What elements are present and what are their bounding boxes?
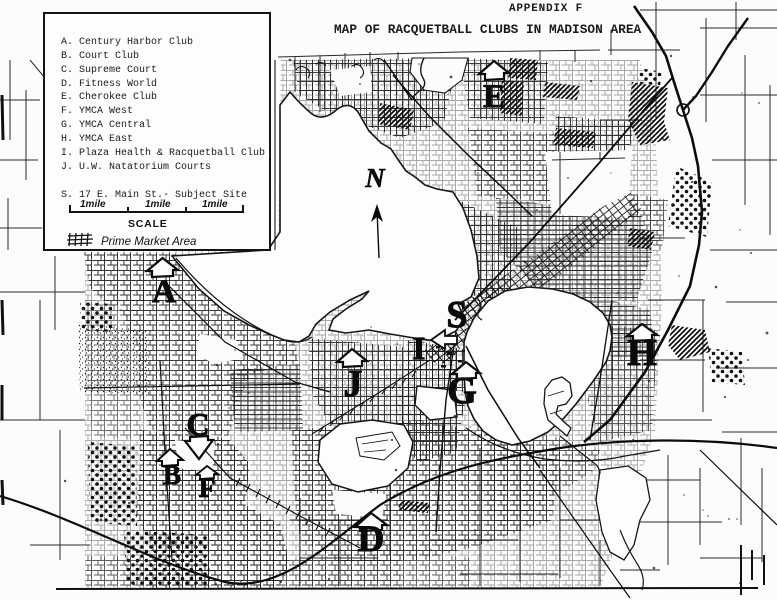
- svg-text:J: J: [344, 363, 363, 405]
- svg-text:A. Century Harbor Club: A. Century Harbor Club: [61, 36, 193, 48]
- svg-text:B: B: [163, 460, 181, 490]
- svg-text:MAP OF RACQUETBALL CLUBS IN MA: MAP OF RACQUETBALL CLUBS IN MADISON AREA: [334, 22, 641, 37]
- svg-text:APPENDIX F: APPENDIX F: [509, 3, 583, 15]
- svg-text:1mile: 1mile: [80, 199, 106, 210]
- svg-text:N: N: [364, 163, 386, 193]
- svg-text:Prime Market Area: Prime Market Area: [101, 236, 196, 248]
- svg-text:G: G: [447, 370, 477, 412]
- svg-text:G. YMCA Central: G. YMCA Central: [61, 119, 151, 131]
- svg-text:E. Cherokee Club: E. Cherokee Club: [61, 91, 157, 103]
- svg-text:1mile: 1mile: [202, 199, 228, 210]
- svg-text:C. Supreme Court: C. Supreme Court: [61, 65, 157, 76]
- svg-text:I: I: [413, 330, 425, 366]
- svg-text:SCALE: SCALE: [128, 218, 168, 230]
- svg-text:1mile: 1mile: [145, 199, 171, 210]
- svg-text:H. YMCA East: H. YMCA East: [61, 134, 133, 145]
- svg-text:F. YMCA West: F. YMCA West: [61, 106, 133, 117]
- svg-text:F: F: [199, 473, 216, 503]
- svg-text:D: D: [358, 519, 385, 560]
- svg-text:D. Fitness World: D. Fitness World: [61, 78, 157, 90]
- svg-text:B. Court Club: B. Court Club: [61, 50, 139, 62]
- svg-text:A: A: [152, 274, 176, 310]
- svg-text:S: S: [446, 294, 467, 336]
- svg-text:H: H: [627, 332, 657, 374]
- svg-text:E: E: [483, 79, 505, 115]
- svg-text:J. U.W. Natatorium Courts: J. U.W. Natatorium Courts: [61, 161, 211, 173]
- svg-text:I. Plaza Health & Racquetball: I. Plaza Health & Racquetball Club: [61, 147, 265, 159]
